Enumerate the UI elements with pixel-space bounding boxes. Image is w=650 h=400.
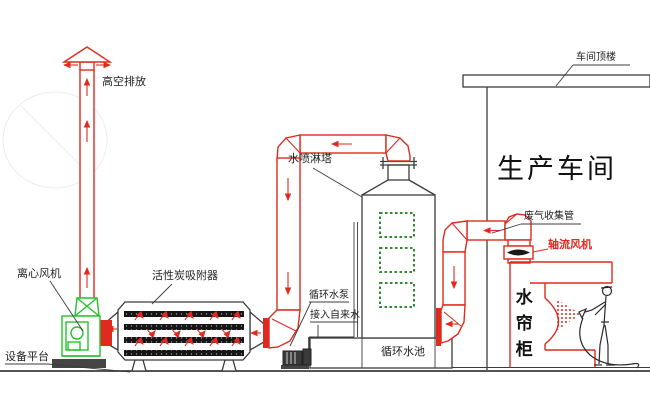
label-circulating-pump: 循环水泵 <box>309 290 349 301</box>
label-circulating-pool: 循环水池 <box>381 346 425 358</box>
label-tap-water: 接入自来水 <box>310 310 360 321</box>
tower-neck <box>388 165 409 180</box>
carbon-adsorber <box>99 302 269 371</box>
carbon-layer <box>124 337 244 343</box>
label-water-curtain-cabinet: 水帘柜 <box>512 288 531 372</box>
rain-cap <box>64 47 110 62</box>
label-axial-fan: 轴流风机 <box>548 239 592 251</box>
carbon-layer <box>124 324 244 330</box>
tower-body <box>362 195 435 338</box>
process-flow-diagram: 高空排放 离心风机 设备平台 活性炭吸附器 水喷淋塔 循环水泵 接入自来水 循环… <box>0 0 650 400</box>
label-gas-collection-pipe: 废气收集管 <box>524 211 574 222</box>
centrifugal-fan <box>52 298 106 368</box>
label-production-workshop: 生产车间 <box>497 155 617 185</box>
label-spray-tower: 水喷淋塔 <box>288 153 332 165</box>
tower-inlet-flange <box>436 308 441 346</box>
adsorber-inlet-flange <box>263 318 269 348</box>
label-workshop-roof: 车间顶楼 <box>576 52 616 63</box>
label-centrifugal-fan: 离心风机 <box>17 268 61 280</box>
water-piping <box>309 222 358 352</box>
adsorber-outlet-flange <box>99 320 112 346</box>
label-carbon-adsorber: 活性炭吸附器 <box>152 270 218 282</box>
spray-tower <box>310 157 452 368</box>
spray-cone <box>556 299 581 331</box>
label-high-discharge: 高空排放 <box>102 76 146 88</box>
carbon-layer <box>124 350 244 356</box>
circulating-pump <box>281 349 311 369</box>
worker-figure <box>579 287 639 369</box>
carbon-layer <box>124 311 244 317</box>
label-equipment-platform: 设备平台 <box>5 351 49 363</box>
diagram-canvas <box>0 0 650 400</box>
spray-hose <box>580 318 639 368</box>
